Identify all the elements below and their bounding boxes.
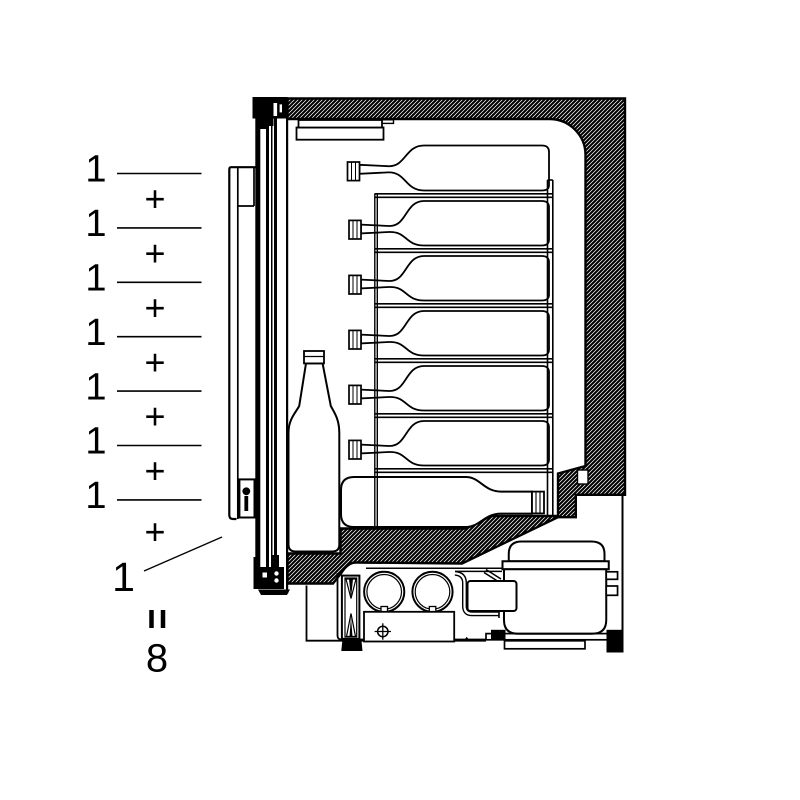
svg-text:+: + <box>144 178 165 219</box>
svg-text:1: 1 <box>85 421 106 463</box>
svg-text:1: 1 <box>85 475 106 517</box>
svg-text:8: 8 <box>146 637 168 681</box>
svg-text:+: + <box>144 233 165 274</box>
svg-text:1: 1 <box>85 203 106 245</box>
svg-text:1: 1 <box>85 149 106 191</box>
svg-text:+: + <box>144 450 165 491</box>
svg-text:1: 1 <box>85 312 106 354</box>
svg-text:1: 1 <box>85 366 106 408</box>
svg-text:1: 1 <box>112 554 135 600</box>
svg-text:+: + <box>144 511 165 552</box>
svg-text:+: + <box>144 396 165 437</box>
svg-text:+: + <box>144 287 165 328</box>
svg-text:1: 1 <box>85 258 106 300</box>
svg-text:+: + <box>144 341 165 382</box>
